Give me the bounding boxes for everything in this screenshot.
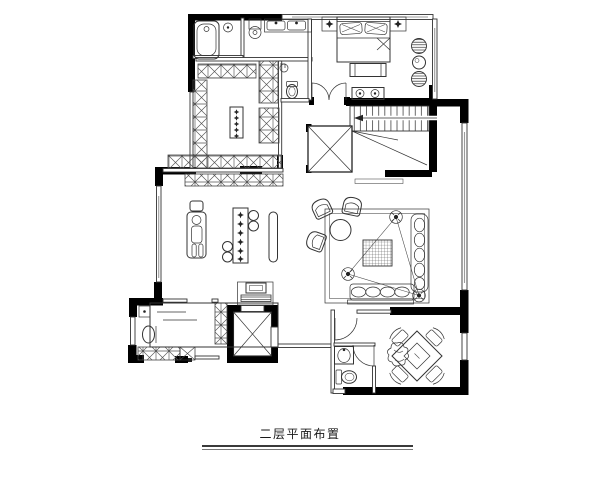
double-basin-vanity-icon bbox=[265, 19, 312, 32]
appliance-stand-icon bbox=[180, 347, 195, 362]
game-chair-icon bbox=[425, 365, 446, 386]
reading-chair-icon bbox=[143, 326, 157, 343]
closet-bottom-wardrobe-icon bbox=[168, 155, 281, 168]
floor-plan-page: 二层平面布置 bbox=[0, 0, 600, 480]
closet-top-wardrobe-icon bbox=[198, 64, 256, 78]
study-tall-cabinet-icon bbox=[215, 303, 227, 344]
hall-swing-door-icon bbox=[335, 318, 357, 340]
bed-bench-icon bbox=[350, 64, 386, 77]
computer-desk-icon bbox=[238, 282, 274, 305]
water-closet-top bbox=[280, 64, 298, 99]
plan-title: 二层平面布置 bbox=[0, 425, 600, 442]
bar-island-icon bbox=[233, 208, 248, 263]
double-swing-door-icon bbox=[312, 83, 346, 100]
game-chair-icon bbox=[388, 365, 409, 386]
closet-right-lower-wardrobe-icon bbox=[259, 108, 279, 143]
pedestal-sink-icon bbox=[249, 19, 261, 39]
double-bed-icon bbox=[337, 17, 390, 62]
elevator-door-top-icon bbox=[241, 306, 264, 312]
game-chair-icon bbox=[425, 326, 446, 347]
lower-bathroom bbox=[335, 347, 357, 385]
washbasin-icon bbox=[335, 347, 354, 365]
bench-seat-icon bbox=[269, 212, 278, 262]
lounge-sideboard-icon bbox=[185, 174, 283, 186]
floor-plan-drawing bbox=[0, 0, 600, 480]
toilet-icon bbox=[336, 370, 357, 384]
media-cabinet-icon bbox=[352, 88, 384, 100]
void-shaft-icon bbox=[308, 126, 352, 172]
speaker-icon bbox=[342, 268, 355, 281]
chaise-icon bbox=[411, 214, 428, 292]
master-bedroom bbox=[322, 17, 427, 100]
corner-stand-icon bbox=[139, 306, 150, 317]
armchair-icon bbox=[304, 230, 327, 253]
living-area bbox=[304, 196, 429, 304]
bathroom-swing-door-icon bbox=[353, 345, 374, 366]
closet-right-wardrobe-icon bbox=[259, 61, 278, 103]
massage-chair-icon bbox=[187, 201, 206, 258]
master-bathroom bbox=[194, 19, 312, 59]
title-underline-top bbox=[202, 445, 413, 447]
speaker-icon bbox=[413, 289, 426, 302]
toilet-icon bbox=[287, 82, 298, 99]
shower-stool-icon bbox=[224, 23, 233, 32]
speaker-icon bbox=[390, 211, 403, 224]
family-lounge bbox=[187, 201, 278, 305]
island-dresser-icon bbox=[230, 107, 243, 139]
walls-black bbox=[128, 14, 469, 395]
keyboard-icon bbox=[241, 295, 271, 302]
round-tea-table-icon bbox=[330, 220, 351, 241]
coffee-table-icon bbox=[363, 240, 392, 266]
title-underline-bottom bbox=[202, 449, 413, 450]
square-game-table-icon bbox=[392, 331, 442, 381]
round-side-table-icon bbox=[413, 56, 426, 69]
bathtub-icon bbox=[194, 21, 219, 59]
sofa-icon bbox=[348, 284, 415, 304]
study-cabinet-icon bbox=[138, 347, 180, 360]
game-chair-icon bbox=[388, 326, 409, 347]
elevator-shaft-icon bbox=[234, 306, 279, 357]
elevator-door-icon bbox=[271, 327, 278, 347]
armchair-icon bbox=[310, 197, 334, 220]
mahjong-room bbox=[387, 326, 445, 386]
lounge-chair-icon bbox=[412, 39, 427, 87]
